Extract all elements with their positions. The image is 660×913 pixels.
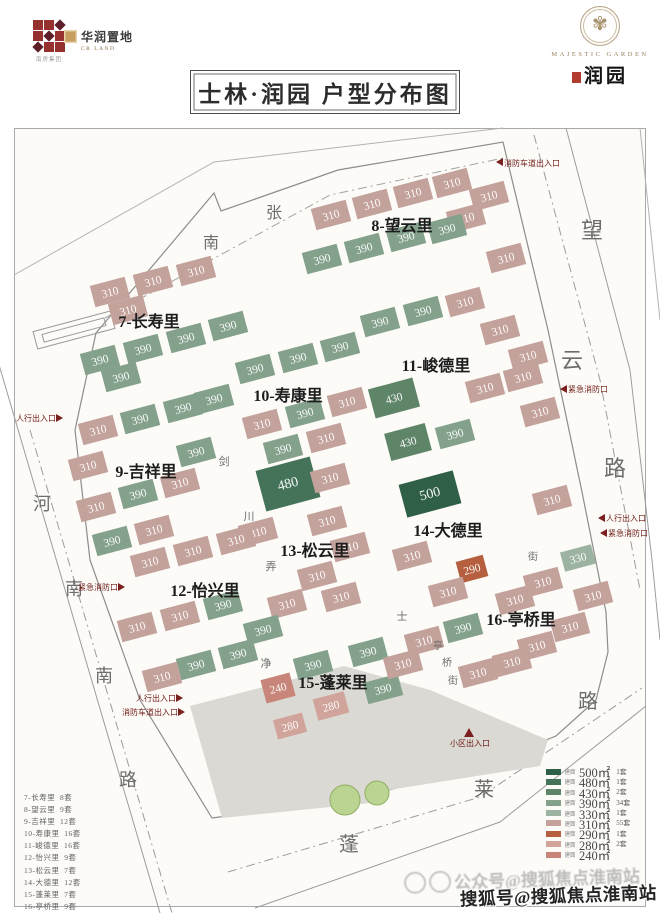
tree-icon bbox=[330, 785, 360, 815]
legend-swatch bbox=[546, 800, 561, 806]
legend-prefix: 建面 bbox=[565, 850, 576, 859]
entrance-label: 人行出入口 bbox=[606, 513, 646, 523]
legend-prefix: 建面 bbox=[565, 840, 576, 849]
street-label: 士 bbox=[397, 610, 408, 623]
legend-count: 2套 bbox=[616, 839, 627, 849]
district-label: 13-松云里 bbox=[280, 541, 349, 560]
district-label: 16-亭桥里 bbox=[486, 610, 555, 629]
legend-count: 1套 bbox=[616, 777, 627, 787]
legend-swatch bbox=[546, 852, 561, 858]
legend-count: 34套 bbox=[616, 798, 630, 808]
entrance-label: 紧急消防口 bbox=[608, 528, 648, 538]
street-label: 莱 bbox=[474, 778, 494, 801]
unit-list-row: 7-长寿里 8套 bbox=[24, 792, 81, 804]
entrance-label: 人行出入口 bbox=[136, 693, 176, 703]
district-label: 14-大德里 bbox=[413, 521, 482, 540]
legend-swatch bbox=[546, 779, 561, 785]
legend-prefix: 建面 bbox=[565, 798, 576, 807]
unit-list-row: 16-亭桥里 9套 bbox=[24, 901, 81, 913]
street-label: 南 bbox=[95, 666, 113, 686]
street-label: 亭 bbox=[433, 639, 443, 652]
unit-list-row: 14-大德里 12套 bbox=[24, 877, 81, 889]
area-legend: 建面500㎡1套建面480㎡1套建面430㎡2套建面390㎡34套建面330㎡1… bbox=[546, 768, 630, 858]
legend-prefix: 建面 bbox=[565, 788, 576, 797]
page: 南房集团 华润置地 CR LAND 士林·润园 户型分布图 ✾ MAJESTIC… bbox=[0, 0, 660, 913]
entrance-label: 人行出入口 bbox=[16, 413, 56, 423]
street-label: 南 bbox=[203, 234, 219, 252]
legend-count: 1套 bbox=[616, 829, 627, 839]
district-label: 10-寿康里 bbox=[253, 386, 322, 405]
legend-swatch bbox=[546, 789, 561, 795]
legend-prefix: 建面 bbox=[565, 819, 576, 828]
street-label: 河 bbox=[33, 494, 51, 514]
street-label: 川 bbox=[244, 511, 255, 523]
street-label: 弄 bbox=[266, 560, 277, 573]
entrance-label: 小区出入口 bbox=[450, 738, 490, 748]
street-label: 路 bbox=[578, 690, 598, 713]
unit-list-row: 11-峻德里 16套 bbox=[24, 840, 81, 852]
district-unit-list: 7-长寿里 8套8-望云里 9套9-吉祥里 12套10-寿康里 16套11-峻德… bbox=[24, 792, 81, 913]
street-label: 路 bbox=[604, 456, 626, 481]
district-label: 7-长寿里 bbox=[118, 312, 179, 331]
legend-count: 55套 bbox=[616, 818, 630, 828]
street-label: 蓬 bbox=[339, 833, 359, 856]
entrance-label: 消防车道出入口 bbox=[504, 158, 560, 168]
entrance-label: 紧急消防口 bbox=[568, 384, 608, 394]
legend-prefix: 建面 bbox=[565, 809, 576, 818]
street-label: 望 bbox=[581, 218, 603, 243]
legend-count: 1套 bbox=[616, 767, 627, 777]
district-label: 15-蓬莱里 bbox=[298, 673, 367, 692]
unit-list-row: 13-松云里 7套 bbox=[24, 865, 81, 877]
legend-row: 建面240㎡ bbox=[546, 851, 630, 858]
street-label: 剑 bbox=[219, 454, 230, 468]
legend-prefix: 建面 bbox=[565, 767, 576, 776]
watermark-icon bbox=[404, 871, 427, 894]
district-label: 9-吉祥里 bbox=[115, 462, 176, 481]
legend-count: 1套 bbox=[616, 808, 627, 818]
street-label: 桥 bbox=[442, 657, 452, 669]
street-label: 路 bbox=[119, 770, 137, 790]
legend-prefix: 建面 bbox=[565, 829, 576, 838]
street-label: 云 bbox=[561, 348, 583, 373]
unit-list-row: 10-寿康里 16套 bbox=[24, 828, 81, 840]
legend-swatch bbox=[546, 831, 561, 837]
legend-count: 2套 bbox=[616, 787, 627, 797]
unit-list-row: 8-望云里 9套 bbox=[24, 804, 81, 816]
legend-prefix: 建面 bbox=[565, 777, 576, 786]
unit-list-row: 9-吉祥里 12套 bbox=[24, 816, 81, 828]
street-label: 张 bbox=[266, 204, 282, 222]
street-label: 街 bbox=[448, 674, 458, 687]
legend-swatch bbox=[546, 820, 561, 826]
district-label: 8-望云里 bbox=[371, 216, 432, 235]
unit-list-row: 15-蓬莱里 7套 bbox=[24, 889, 81, 901]
legend-area: 240㎡ bbox=[579, 845, 610, 864]
district-label: 12-怡兴里 bbox=[170, 581, 239, 600]
legend-swatch bbox=[546, 841, 561, 847]
street-label: 净 bbox=[261, 656, 272, 670]
tree-icon bbox=[365, 781, 389, 805]
district-label: 11-峻德里 bbox=[402, 356, 470, 375]
unit-list-row: 12-怡兴里 9套 bbox=[24, 852, 81, 864]
legend-swatch bbox=[546, 769, 561, 775]
entrance-label: 紧急消防口 bbox=[78, 582, 118, 592]
legend-swatch bbox=[546, 810, 561, 816]
entrance-label: 消防车道出入口 bbox=[122, 707, 178, 717]
street-label: 街 bbox=[528, 550, 538, 563]
watermark-icon bbox=[429, 870, 452, 893]
